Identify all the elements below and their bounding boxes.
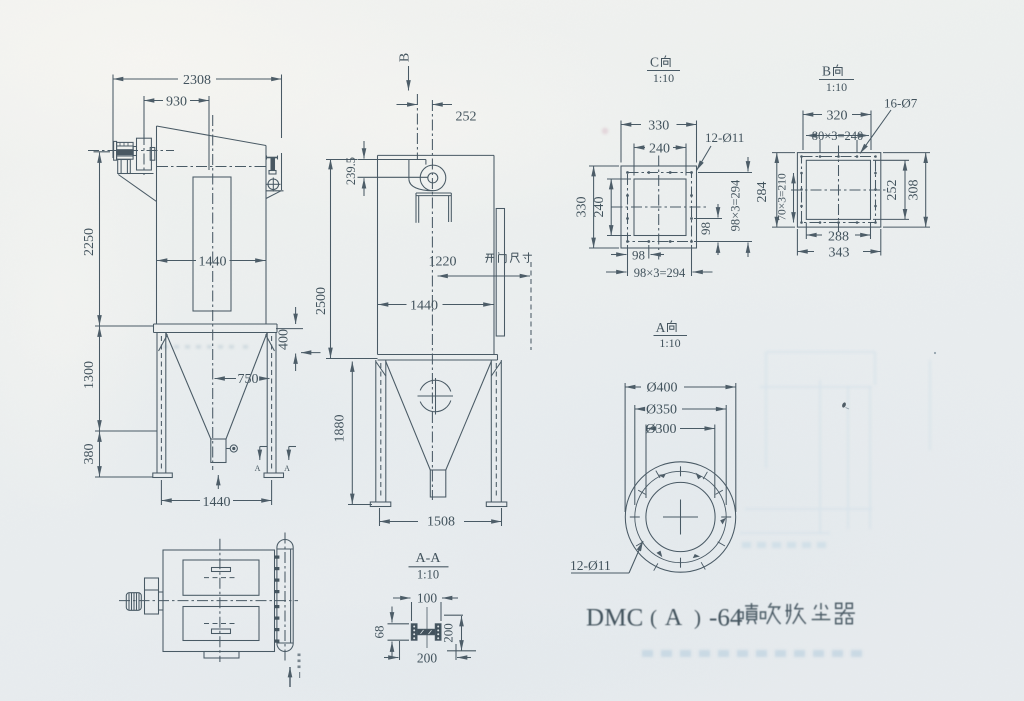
- svg-text:1:10: 1:10: [659, 336, 680, 350]
- svg-text:16-Ø7: 16-Ø7: [884, 96, 918, 111]
- svg-text:B: B: [398, 53, 413, 62]
- svg-text:320: 320: [827, 109, 848, 124]
- svg-text:1508: 1508: [427, 515, 455, 530]
- svg-text:252: 252: [456, 110, 477, 125]
- svg-text:239.5: 239.5: [344, 157, 358, 185]
- svg-text:A-A: A-A: [416, 551, 442, 566]
- svg-text:1440: 1440: [410, 299, 438, 314]
- svg-text:A: A: [255, 464, 261, 473]
- svg-text:1440: 1440: [203, 495, 231, 510]
- svg-text:284: 284: [755, 182, 770, 203]
- svg-text:1:10: 1:10: [653, 71, 674, 85]
- svg-text:930: 930: [166, 95, 187, 110]
- svg-text:Ø350: Ø350: [646, 403, 677, 418]
- svg-text:1:10: 1:10: [417, 568, 439, 582]
- svg-text:400: 400: [277, 329, 292, 350]
- svg-text:308: 308: [907, 180, 922, 201]
- svg-text:2250: 2250: [82, 228, 97, 256]
- svg-text:330: 330: [648, 119, 669, 134]
- svg-text:A: A: [284, 464, 290, 473]
- svg-text:B: B: [822, 64, 831, 79]
- svg-text:Ø400: Ø400: [646, 381, 677, 396]
- svg-text:200: 200: [441, 623, 456, 643]
- svg-text:98×3=294: 98×3=294: [634, 266, 686, 280]
- svg-text:DMC: DMC: [586, 605, 644, 632]
- svg-text:Ø300: Ø300: [645, 422, 676, 437]
- svg-text:240: 240: [592, 197, 607, 218]
- svg-text:A: A: [656, 320, 666, 335]
- svg-text:1300: 1300: [82, 361, 97, 389]
- svg-text:12-Ø11: 12-Ø11: [570, 558, 611, 573]
- svg-text:750: 750: [238, 372, 259, 387]
- svg-text:200: 200: [417, 651, 438, 666]
- svg-text:): ): [694, 606, 701, 630]
- svg-text:1:10: 1:10: [826, 80, 847, 94]
- svg-text:A: A: [665, 605, 683, 631]
- svg-text:330: 330: [575, 197, 590, 218]
- svg-text:100: 100: [417, 591, 438, 606]
- svg-text:240: 240: [649, 142, 670, 157]
- svg-text:252: 252: [885, 180, 900, 201]
- svg-text:98: 98: [698, 222, 713, 235]
- svg-text:80×3=240: 80×3=240: [812, 129, 864, 143]
- svg-text:12-Ø11: 12-Ø11: [705, 130, 744, 145]
- svg-text:343: 343: [829, 246, 850, 261]
- svg-text:380: 380: [82, 444, 97, 465]
- svg-text:C: C: [650, 55, 659, 70]
- svg-text:288: 288: [828, 230, 849, 245]
- svg-text:98×3=294: 98×3=294: [729, 179, 743, 231]
- svg-text:70×3=210: 70×3=210: [777, 173, 789, 221]
- svg-text:68: 68: [372, 626, 387, 639]
- svg-text:2308: 2308: [183, 73, 211, 88]
- svg-text:2500: 2500: [314, 287, 329, 315]
- svg-text:1440: 1440: [199, 255, 227, 270]
- svg-text:98: 98: [632, 248, 645, 263]
- svg-text:1880: 1880: [333, 415, 348, 443]
- svg-text:1220: 1220: [429, 255, 457, 270]
- svg-text:(: (: [650, 606, 657, 630]
